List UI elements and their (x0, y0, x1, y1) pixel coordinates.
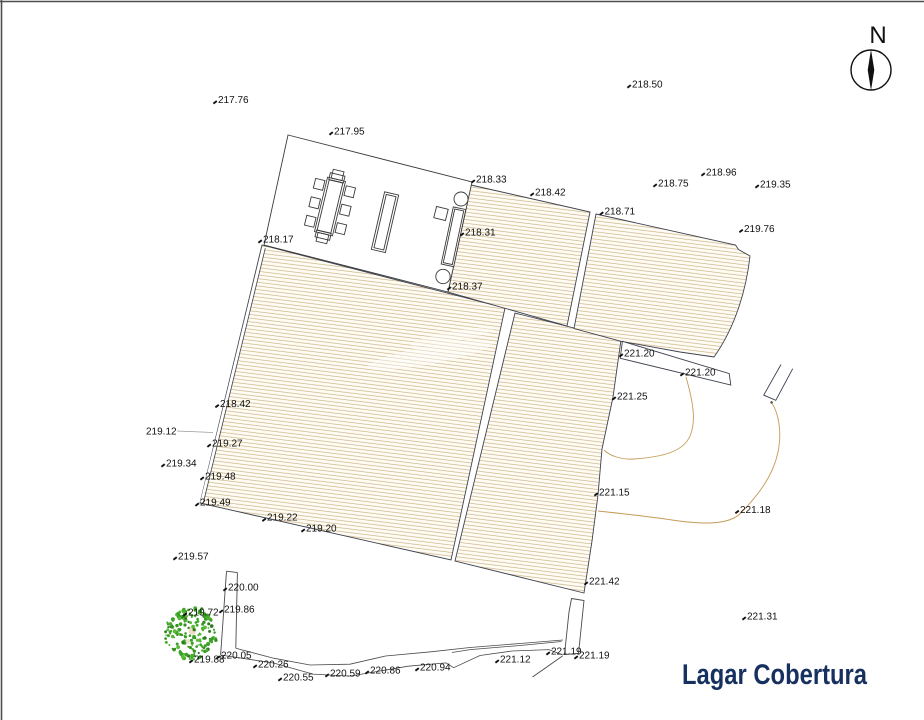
svg-text:220.05: 220.05 (221, 650, 252, 661)
svg-text:218.31: 218.31 (465, 227, 496, 238)
svg-text:219.27: 219.27 (212, 439, 243, 450)
svg-text:218.42: 218.42 (535, 187, 566, 198)
svg-text:221.19: 221.19 (551, 646, 582, 657)
svg-text:221.18: 221.18 (740, 505, 771, 516)
svg-text:220.26: 220.26 (258, 659, 289, 670)
svg-text:219.72: 219.72 (188, 607, 219, 618)
svg-text:219.86: 219.86 (224, 604, 255, 615)
svg-text:220.00: 220.00 (228, 582, 259, 593)
svg-text:N: N (869, 22, 886, 49)
svg-text:220.55: 220.55 (283, 672, 314, 683)
svg-text:221.20: 221.20 (624, 348, 655, 359)
svg-text:217.95: 217.95 (334, 126, 365, 137)
svg-text:221.20: 221.20 (685, 367, 716, 378)
svg-text:218.75: 218.75 (658, 178, 689, 189)
svg-text:219.48: 219.48 (205, 471, 236, 482)
svg-text:217.76: 217.76 (218, 95, 249, 106)
svg-text:219.22: 219.22 (267, 513, 298, 524)
svg-text:219.12: 219.12 (146, 427, 177, 438)
svg-text:218.42: 218.42 (220, 399, 251, 410)
svg-text:221.15: 221.15 (599, 487, 630, 498)
svg-text:219.20: 219.20 (306, 523, 337, 534)
svg-text:219.76: 219.76 (744, 224, 775, 235)
svg-text:218.71: 218.71 (605, 206, 636, 217)
svg-text:221.42: 221.42 (589, 576, 620, 587)
svg-text:218.37: 218.37 (452, 281, 483, 292)
svg-text:220.86: 220.86 (370, 665, 401, 676)
svg-text:221.31: 221.31 (747, 611, 778, 622)
svg-text:218.96: 218.96 (706, 167, 737, 178)
svg-text:Lagar Cobertura: Lagar Cobertura (682, 659, 868, 691)
svg-text:218.50: 218.50 (632, 79, 663, 90)
svg-text:221.25: 221.25 (617, 391, 648, 402)
svg-text:219.34: 219.34 (166, 458, 197, 469)
svg-text:220.94: 220.94 (420, 662, 451, 673)
svg-text:219.35: 219.35 (760, 179, 791, 190)
svg-text:218.33: 218.33 (476, 174, 507, 185)
svg-text:219.57: 219.57 (178, 551, 209, 562)
svg-text:220.59: 220.59 (330, 668, 361, 679)
svg-text:221.12: 221.12 (500, 654, 531, 665)
svg-text:221.19: 221.19 (579, 650, 610, 661)
svg-text:219.49: 219.49 (200, 498, 231, 509)
svg-text:218.17: 218.17 (263, 234, 294, 245)
